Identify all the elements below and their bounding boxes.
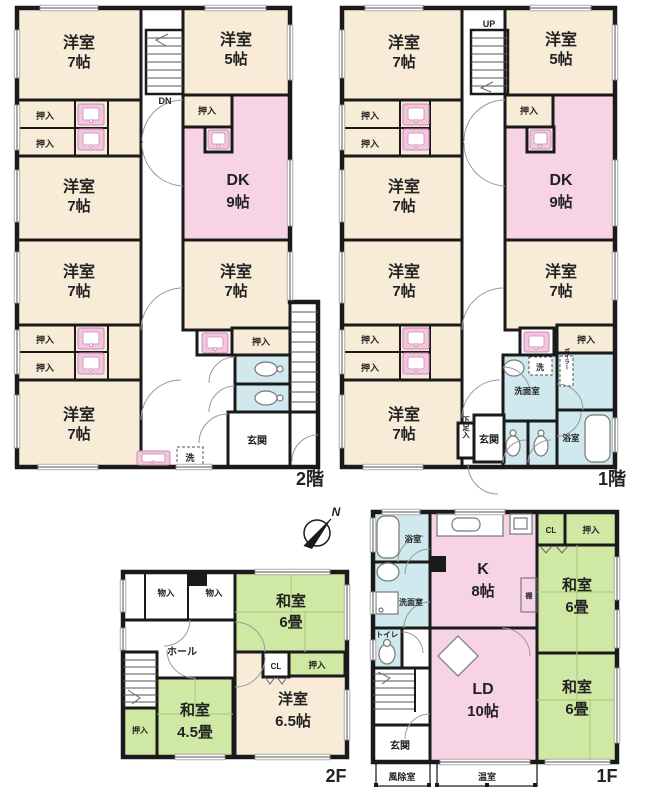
washer-label: 洗 <box>536 362 544 372</box>
entrance-label: 玄関 <box>390 739 410 752</box>
floor-label-2f: 2F <box>325 766 346 786</box>
storage-label: 物入 <box>205 588 223 598</box>
bathtub-icon <box>585 415 610 462</box>
room-size: 7帖 <box>392 53 415 71</box>
stairs-up-label: UP <box>483 19 496 29</box>
stairs-dn-label: DN <box>159 96 172 106</box>
floor-label-1f: 1F <box>596 766 617 786</box>
room-size: 6畳 <box>565 599 588 616</box>
room-label: 洋室 <box>63 177 95 196</box>
closet-label: 押入 <box>198 105 216 116</box>
room-label: 洋室 <box>388 405 420 424</box>
room-size: 8帖 <box>471 582 494 600</box>
storage-label: 物入 <box>157 588 175 598</box>
room-size: 7帖 <box>549 282 572 300</box>
room-label: 洋室 <box>388 177 420 196</box>
room-label: K <box>477 561 489 578</box>
room-label: DK <box>226 172 250 189</box>
room-label: 洋室 <box>388 262 420 281</box>
room-label: 和室 <box>562 678 592 696</box>
room-label: 洋室 <box>545 30 577 49</box>
floorplan-sheet: 洋室 7帖 洋室 5帖 洋室 7帖 DK 9帖 洋室 7帖 洋室 7帖 洋室 7… <box>0 0 645 800</box>
room-size: 7帖 <box>67 425 90 443</box>
closet-label: 押入 <box>361 138 379 149</box>
floor-label-1kai: 1階 <box>598 469 626 489</box>
room-size: 7帖 <box>67 197 90 215</box>
room-size: 6畳 <box>279 614 302 631</box>
floorplan-svg: 洋室 7帖 洋室 5帖 洋室 7帖 DK 9帖 洋室 7帖 洋室 7帖 洋室 7… <box>0 0 645 800</box>
closet-label: 押入 <box>252 336 270 347</box>
room-label: 洋室 <box>278 690 308 708</box>
closet-label: 押入 <box>36 362 54 373</box>
closet-label: 押入 <box>361 110 379 121</box>
sink-icon <box>377 563 399 581</box>
room-size: 7帖 <box>224 282 247 300</box>
room-label: DK <box>549 172 573 189</box>
windbreak-label: 風除室 <box>388 771 415 782</box>
closet-label: 押入 <box>361 362 379 373</box>
room-label: 洋室 <box>220 30 252 49</box>
washbasin-icon <box>202 333 228 353</box>
closet-label: 押入 <box>520 105 538 116</box>
washbasin-icon <box>78 328 104 349</box>
room-label: 洋室 <box>388 33 420 52</box>
shoe-closet-label: 下足入 <box>461 415 470 438</box>
plan-1kai: 洋室 7帖 洋室 5帖 洋室 7帖 DK 9帖 洋室 7帖 洋室 7帖 洋室 7… <box>339 5 626 494</box>
closet-cl-label: CL <box>546 526 557 535</box>
room-label: 和室 <box>180 701 210 719</box>
refrigerator-pillar <box>430 556 446 572</box>
plan-1kai-stairs <box>471 30 508 94</box>
room-size: 5帖 <box>549 50 572 68</box>
closet-label: 押入 <box>582 525 600 535</box>
washbasin-icon <box>403 328 429 349</box>
washroom-label: 洗面室 <box>514 386 540 396</box>
room-size: 9帖 <box>549 193 572 211</box>
closet-label: 押入 <box>132 725 148 735</box>
stair-hall <box>373 668 430 725</box>
washbasin-icon <box>403 129 429 150</box>
room-size: 5帖 <box>224 50 247 68</box>
entrance-label: 玄関 <box>479 433 499 446</box>
room-size: 9帖 <box>226 193 249 211</box>
toilet-label: トイレ <box>376 630 399 639</box>
closet-label: 押入 <box>577 334 595 345</box>
washbasin-icon <box>208 130 229 149</box>
plan-2kai: 洋室 7帖 洋室 5帖 洋室 7帖 DK 9帖 洋室 7帖 洋室 7帖 洋室 7… <box>14 5 324 489</box>
closet-label: 押入 <box>308 660 326 670</box>
washbasin-icon <box>530 130 551 149</box>
room-size: 7帖 <box>392 282 415 300</box>
washbasin-icon <box>524 332 549 352</box>
room-label: 洋室 <box>63 262 95 281</box>
floor-label-2kai: 2階 <box>296 469 324 489</box>
room-size: 7帖 <box>67 53 90 71</box>
plan-1f: 浴室 洗面室 トイレ K 8帖 棚 LD 10帖 CL 押入 和室 6畳 和室 … <box>370 509 620 787</box>
entrance-label: 玄関 <box>247 434 267 447</box>
compass: N <box>304 505 341 549</box>
room-size: 10帖 <box>467 702 499 720</box>
utility-sink-icon <box>376 592 398 614</box>
shelf-label: 棚 <box>526 591 533 600</box>
boiler-label: ボイラー <box>563 347 570 371</box>
stairwell-annex <box>290 302 318 412</box>
bathtub-icon <box>377 516 399 558</box>
washbasin-icon <box>403 104 429 125</box>
washroom-label: 洗面室 <box>399 597 423 607</box>
plan-2f: 物入 物入 和室 6畳 ホール CL 押入 和室 4.5畳 洋室 6.5帖 押入… <box>120 569 350 786</box>
closet-label: 押入 <box>36 334 54 345</box>
compass-north-label: N <box>332 505 341 519</box>
kitchen-counter-icon <box>437 514 532 536</box>
bathroom-label: 浴室 <box>404 534 422 544</box>
room-size: 7帖 <box>392 425 415 443</box>
room-size: 6.5帖 <box>275 712 311 730</box>
room-label: 洋室 <box>220 262 252 281</box>
washbasin-icon <box>78 104 104 125</box>
closet-label: 押入 <box>361 334 379 345</box>
closet-label: 押入 <box>36 138 54 149</box>
room-label: 和室 <box>276 592 306 610</box>
room-label: LD <box>472 681 493 698</box>
closet-label: 押入 <box>36 110 54 121</box>
sunroom-label: 温室 <box>478 771 496 782</box>
room-size: 4.5畳 <box>177 724 213 741</box>
room-label: 和室 <box>562 576 592 594</box>
room-label: 洋室 <box>63 33 95 52</box>
washbasin-icon <box>137 451 170 465</box>
washbasin-icon <box>78 129 104 150</box>
bathroom-label: 浴室 <box>562 433 580 443</box>
washer-label: 洗 <box>185 452 194 463</box>
plan-1kai-rooms <box>342 8 615 467</box>
hall-label: ホール <box>167 646 197 658</box>
room-label: 洋室 <box>545 262 577 281</box>
room-size: 7帖 <box>392 197 415 215</box>
room-label: 洋室 <box>63 405 95 424</box>
washbasin-icon <box>403 353 429 374</box>
room-size: 6畳 <box>565 701 588 718</box>
closet-cl-label: CL <box>271 662 282 671</box>
room-size: 7帖 <box>67 282 90 300</box>
washbasin-icon <box>78 353 104 374</box>
